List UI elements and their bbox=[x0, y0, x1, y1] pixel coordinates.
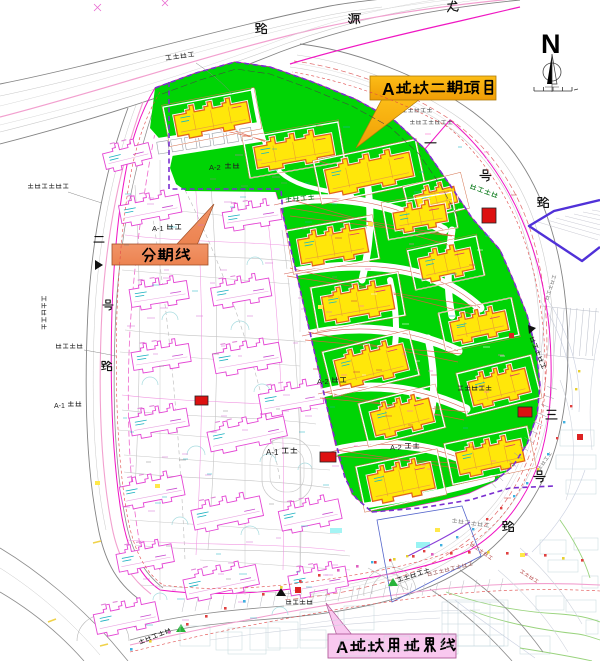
svg-text:A: A bbox=[336, 638, 348, 657]
svg-text:A-1: A-1 bbox=[152, 224, 164, 233]
svg-text:A-1: A-1 bbox=[266, 448, 279, 457]
svg-text:A-1: A-1 bbox=[54, 403, 65, 410]
svg-text:N: N bbox=[541, 29, 561, 59]
svg-text:A-2: A-2 bbox=[209, 163, 221, 172]
svg-text:A-2: A-2 bbox=[390, 443, 402, 452]
svg-text:A: A bbox=[382, 79, 395, 99]
svg-text:A-2: A-2 bbox=[317, 377, 329, 386]
